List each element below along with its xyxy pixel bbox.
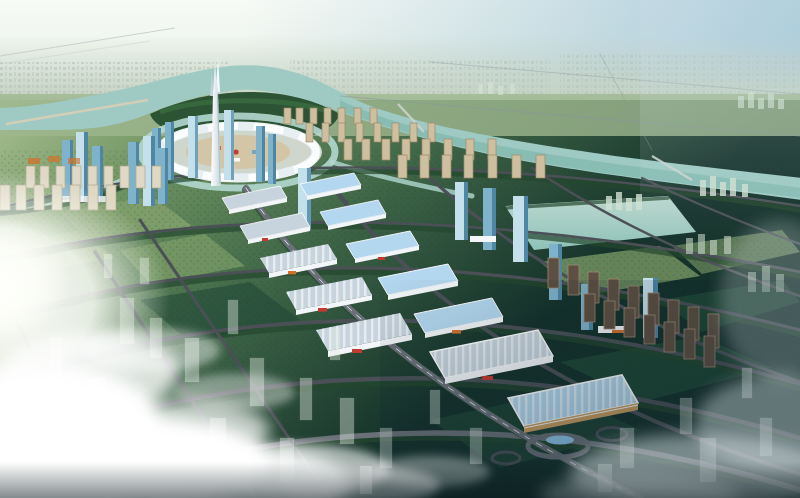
render-canvas — [0, 0, 800, 498]
aerial-city-masterplan-rendering — [0, 0, 800, 498]
bottom-vignette — [0, 462, 800, 498]
orange-roof-block — [48, 156, 60, 162]
orange-roof-block — [68, 158, 80, 164]
podium-building — [470, 236, 496, 242]
orange-roof-block — [28, 158, 40, 164]
plaza-centerpiece — [233, 149, 238, 154]
